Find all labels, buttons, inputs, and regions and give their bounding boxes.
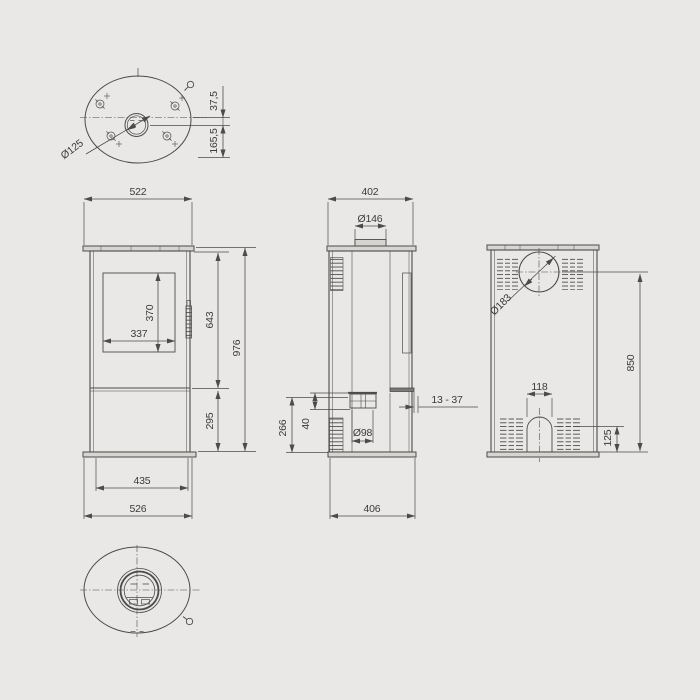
dim-side-base-depth-label: 406 [364, 503, 381, 515]
dim-front-lower-height-label: 295 [204, 412, 216, 429]
side-slot [403, 273, 412, 353]
dim-front-glass [103, 273, 175, 352]
dim-front-top-width-label: 522 [130, 186, 147, 198]
dim-front-glass-height-label: 370 [144, 304, 156, 321]
dim-top-flue-dia-label: Ø125 [59, 137, 86, 162]
dim-side-wall-gap-label: 13 - 37 [431, 394, 463, 406]
door-handle [186, 301, 192, 339]
dim-side-air-dia-label: Ø98 [353, 427, 373, 439]
drawing-stage: 37,5 165,5 Ø125 [0, 0, 700, 700]
dim-side-flue-dia-label: Ø146 [358, 213, 383, 225]
dim-back-flue-dia-label: Ø183 [488, 292, 514, 318]
dim-side-air-height-label: 266 [277, 419, 289, 436]
upper-vents [497, 256, 583, 290]
dim-front-base-width-label: 526 [130, 503, 147, 515]
lower-vents [500, 417, 580, 451]
side-view [286, 199, 478, 519]
dim-front-heights [192, 248, 256, 452]
bottom-view [80, 545, 201, 637]
dim-side-stub-offset-label: 40 [300, 418, 312, 430]
adjust-lever [390, 388, 414, 392]
lower-louver [330, 418, 344, 452]
dim-front-glass-width-label: 337 [131, 328, 148, 340]
bottom-flue-collar [118, 569, 162, 613]
back-view [487, 245, 648, 462]
dim-back-flue-height-label: 850 [625, 354, 637, 371]
dim-top-flue-to-front-label: 165,5 [208, 128, 220, 154]
dim-front-upper-height-label: 643 [204, 311, 216, 328]
stove-dimension-drawing: 37,5 165,5 Ø125 [0, 0, 700, 700]
front-view [83, 199, 256, 519]
dim-top-flue-dia [86, 116, 150, 154]
dim-front-top-width [84, 199, 192, 245]
dim-side-stub-offset [310, 393, 350, 410]
dim-side-top-depth-label: 402 [362, 186, 379, 198]
dim-back-arch-width-label: 118 [531, 381, 547, 393]
air-inlet-stub [348, 393, 377, 408]
upper-louver [331, 258, 344, 291]
dim-front-total-height-label: 976 [231, 339, 243, 356]
dim-front-door-width-label: 435 [134, 475, 151, 487]
lifting-hook-bottom [183, 617, 193, 625]
dim-back-arch-height-label: 125 [602, 429, 614, 446]
screw-marks [95, 93, 185, 147]
flue-collar [355, 240, 386, 247]
front-glass [103, 273, 175, 352]
dim-top-flue-offset-label: 37,5 [208, 91, 220, 111]
lifting-hook [185, 81, 194, 90]
